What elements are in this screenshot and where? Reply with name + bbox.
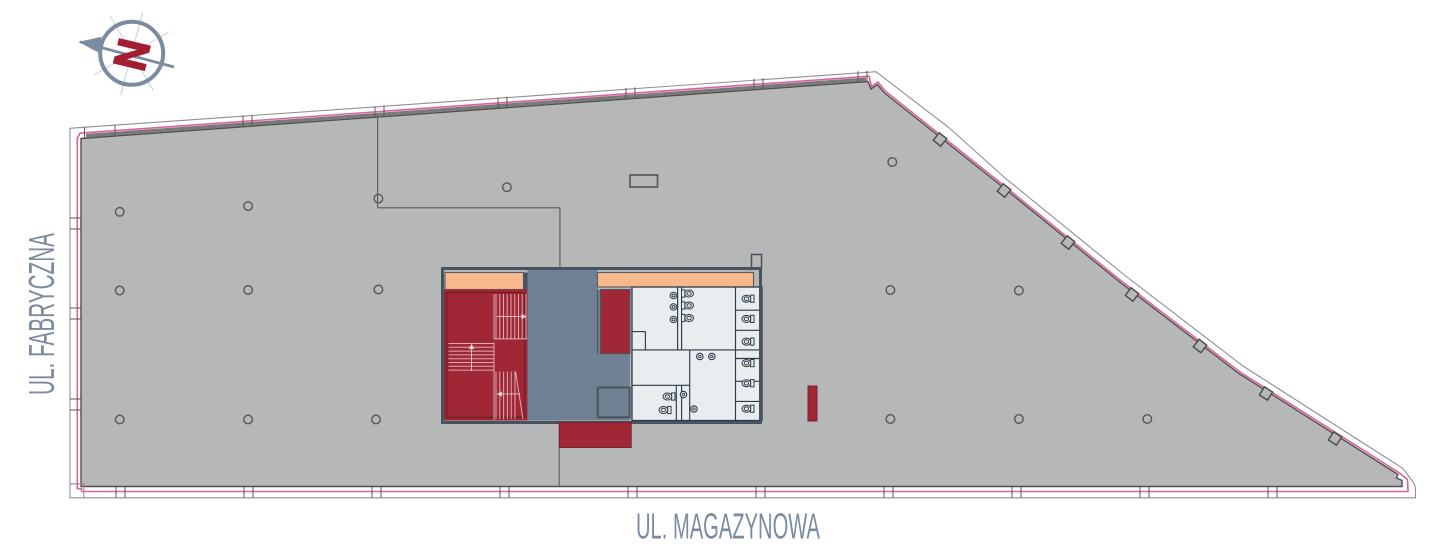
svg-text:UL. MAGAZYNOWA: UL. MAGAZYNOWA xyxy=(636,506,820,547)
svg-text:UL. FABRYCZNA: UL. FABRYCZNA xyxy=(21,233,62,395)
